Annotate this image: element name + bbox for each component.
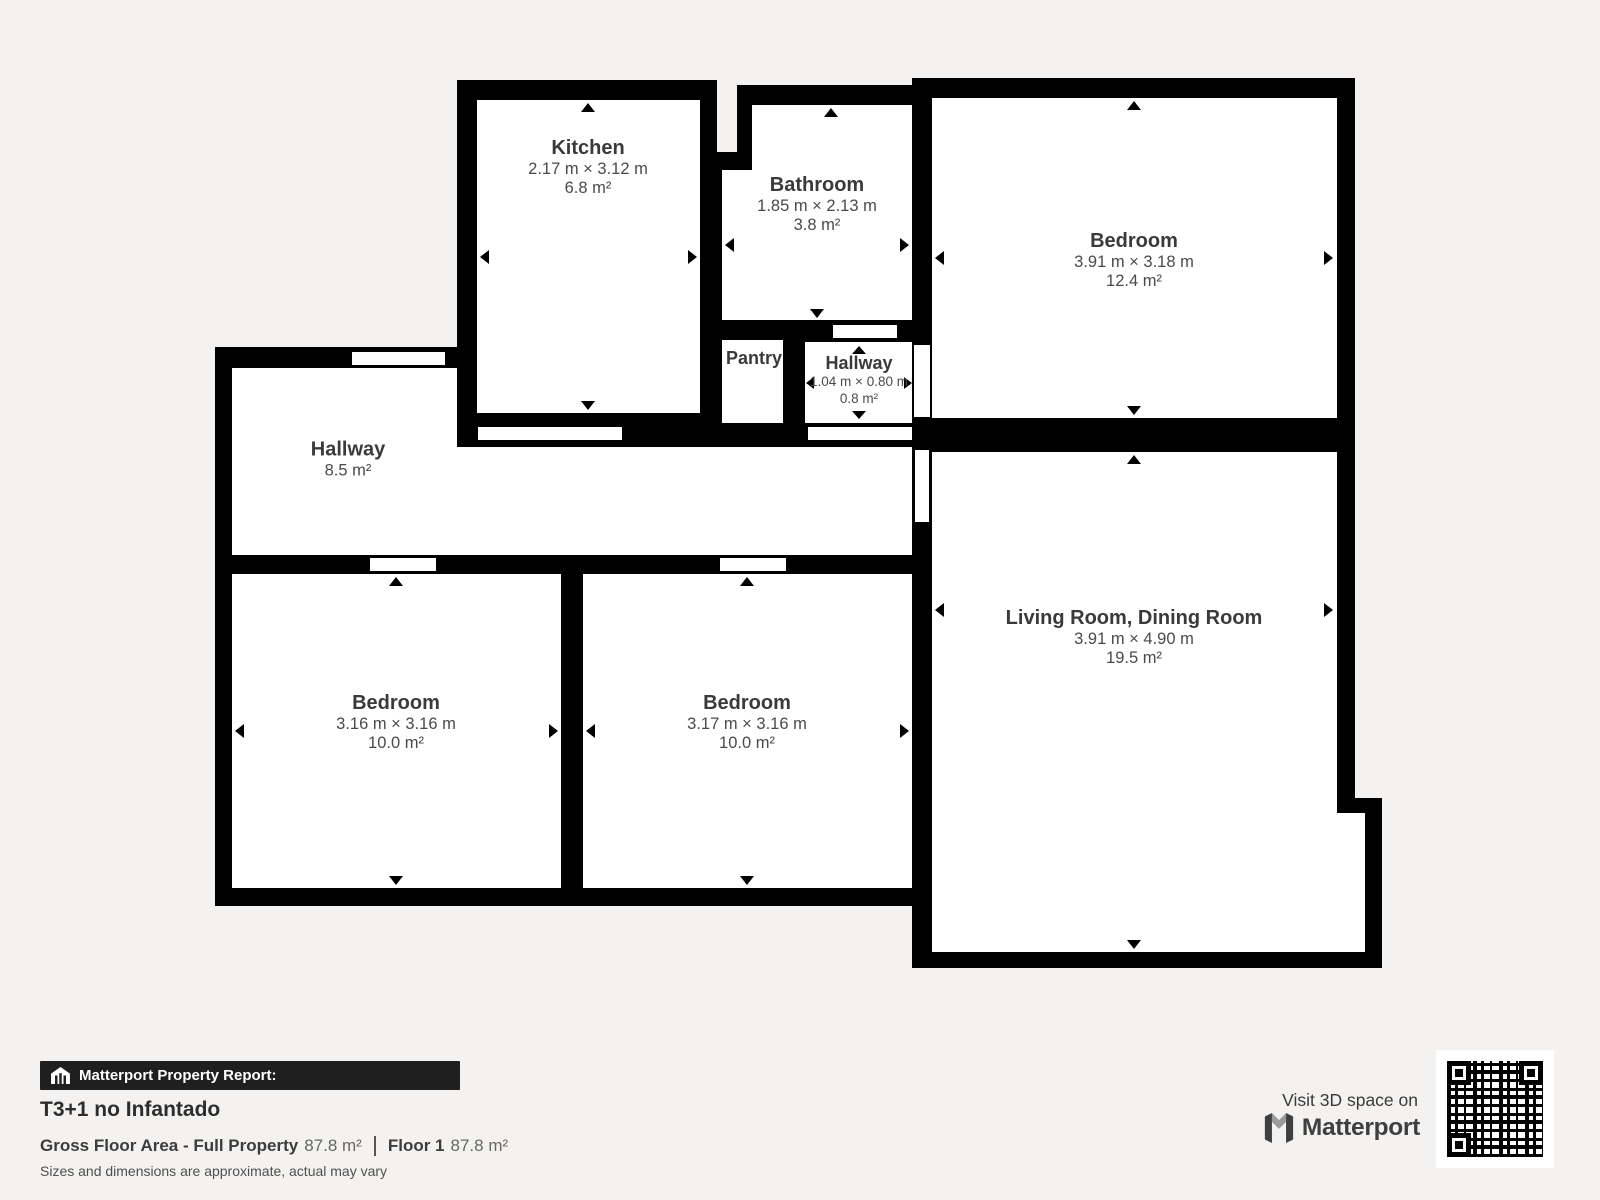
- qr-finder-top-left: [1447, 1061, 1471, 1085]
- room-living-dining: [932, 452, 1337, 952]
- house-icon: [51, 1067, 70, 1084]
- stats-divider: [374, 1136, 376, 1156]
- bedroom-bottom-left-door-opening: [370, 558, 436, 571]
- disclaimer-text: Sizes and dimensions are approximate, ac…: [40, 1163, 387, 1179]
- qr-finder-top-right: [1519, 1061, 1543, 1085]
- entry-door-opening: [352, 352, 445, 365]
- floor-value: 87.8 m²: [451, 1136, 509, 1156]
- building-notch: [717, 76, 737, 152]
- qr-code: [1436, 1050, 1554, 1168]
- living-room-door-opening: [915, 450, 929, 522]
- room-hallway-small: [805, 342, 912, 423]
- room-kitchen: [477, 100, 700, 413]
- room-bedroom-bottom-left: [232, 574, 561, 888]
- bathroom-door-opening: [833, 325, 897, 338]
- property-name: T3+1 no Infantado: [40, 1098, 220, 1122]
- visit-3d-space-text: Visit 3D space on: [1118, 1090, 1418, 1111]
- bedroom-bottom-middle-door-opening: [720, 558, 786, 571]
- report-bar-label: Matterport Property Report:: [79, 1067, 277, 1084]
- floor-label: Floor 1: [388, 1136, 445, 1156]
- matterport-brand: Matterport: [1264, 1112, 1420, 1144]
- hallway-small-door-opening: [808, 427, 912, 440]
- floor-plan-page: Kitchen 2.17 m × 3.12 m 6.8 m² Bathroom …: [0, 0, 1600, 1200]
- floor-plan: [0, 0, 1600, 1010]
- room-pantry: [722, 340, 783, 423]
- room-living-dining-nook: [1337, 813, 1365, 952]
- matterport-wordmark: Matterport: [1302, 1114, 1420, 1142]
- bedroom-top-right-door-opening: [914, 345, 930, 417]
- room-interiors: [232, 98, 1365, 952]
- kitchen-door-opening: [478, 427, 622, 440]
- floor-area-stats: Gross Floor Area - Full Property 87.8 m²…: [40, 1136, 508, 1156]
- gross-floor-area-value: 87.8 m²: [304, 1136, 362, 1156]
- room-bedroom-bottom-middle: [583, 574, 912, 888]
- matterport-logo-icon: [1264, 1112, 1294, 1144]
- qr-finder-bottom-left: [1447, 1133, 1471, 1157]
- gross-floor-area-label: Gross Floor Area - Full Property: [40, 1136, 298, 1156]
- room-bedroom-top-right: [932, 98, 1337, 418]
- report-header-bar: Matterport Property Report:: [40, 1061, 460, 1090]
